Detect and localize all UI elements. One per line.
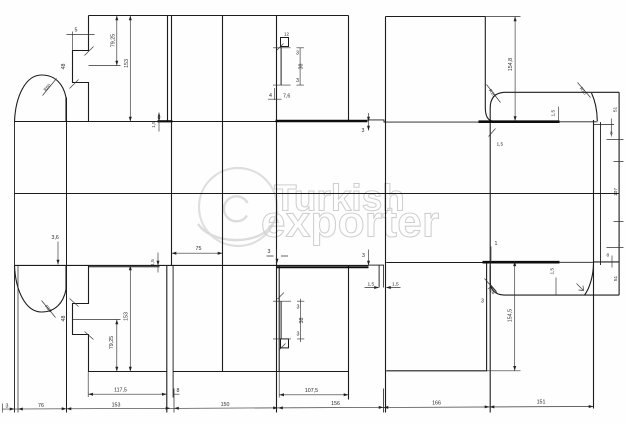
svg-text:12: 12 bbox=[284, 32, 290, 37]
svg-text:7,6: 7,6 bbox=[283, 94, 290, 100]
svg-text:38: 38 bbox=[299, 318, 305, 324]
svg-text:1,5: 1,5 bbox=[150, 259, 156, 266]
svg-text:R60: R60 bbox=[43, 82, 53, 92]
svg-text:5: 5 bbox=[75, 28, 78, 34]
svg-text:107,5: 107,5 bbox=[305, 388, 318, 394]
svg-text:1: 1 bbox=[495, 241, 498, 247]
svg-text:156: 156 bbox=[331, 401, 340, 407]
svg-text:1,5: 1,5 bbox=[151, 121, 157, 128]
svg-text:3: 3 bbox=[297, 332, 300, 338]
svg-text:1,5: 1,5 bbox=[497, 142, 504, 148]
svg-text:151: 151 bbox=[537, 400, 546, 406]
svg-text:48: 48 bbox=[61, 316, 67, 322]
svg-text:3,6: 3,6 bbox=[52, 235, 59, 241]
svg-text:38: 38 bbox=[299, 64, 305, 70]
svg-text:3: 3 bbox=[6, 403, 9, 409]
svg-text:3: 3 bbox=[268, 249, 271, 255]
svg-text:51: 51 bbox=[613, 276, 619, 282]
svg-text:1,5: 1,5 bbox=[551, 109, 557, 116]
svg-text:8: 8 bbox=[607, 253, 610, 259]
svg-text:3: 3 bbox=[362, 128, 365, 134]
svg-text:153: 153 bbox=[112, 403, 121, 409]
svg-text:8: 8 bbox=[610, 131, 613, 137]
svg-text:4: 4 bbox=[269, 93, 272, 99]
svg-text:8: 8 bbox=[177, 388, 180, 394]
svg-text:79,25: 79,25 bbox=[109, 336, 115, 349]
svg-text:153: 153 bbox=[124, 59, 130, 68]
svg-text:76: 76 bbox=[38, 403, 44, 409]
svg-text:3: 3 bbox=[481, 299, 484, 305]
svg-text:153: 153 bbox=[124, 312, 130, 321]
svg-text:1,5: 1,5 bbox=[550, 267, 556, 274]
svg-text:1,5: 1,5 bbox=[392, 282, 399, 288]
svg-text:3: 3 bbox=[362, 253, 365, 259]
svg-text:3: 3 bbox=[296, 51, 299, 57]
svg-text:154,5: 154,5 bbox=[508, 309, 514, 322]
svg-text:79,25: 79,25 bbox=[111, 34, 117, 47]
svg-text:3: 3 bbox=[297, 305, 300, 311]
svg-text:R16: R16 bbox=[487, 286, 497, 296]
svg-text:166: 166 bbox=[432, 400, 441, 406]
svg-text:117,5: 117,5 bbox=[114, 388, 127, 394]
svg-text:R16: R16 bbox=[579, 86, 588, 96]
svg-text:exporter: exporter bbox=[261, 198, 439, 247]
svg-text:3: 3 bbox=[296, 78, 299, 84]
svg-text:1,5: 1,5 bbox=[368, 282, 375, 288]
svg-text:150: 150 bbox=[221, 402, 230, 408]
svg-text:75: 75 bbox=[196, 246, 202, 252]
svg-text:154,8: 154,8 bbox=[508, 58, 514, 71]
svg-text:48: 48 bbox=[61, 64, 67, 70]
svg-text:51: 51 bbox=[613, 107, 619, 113]
svg-text:107: 107 bbox=[613, 188, 619, 196]
